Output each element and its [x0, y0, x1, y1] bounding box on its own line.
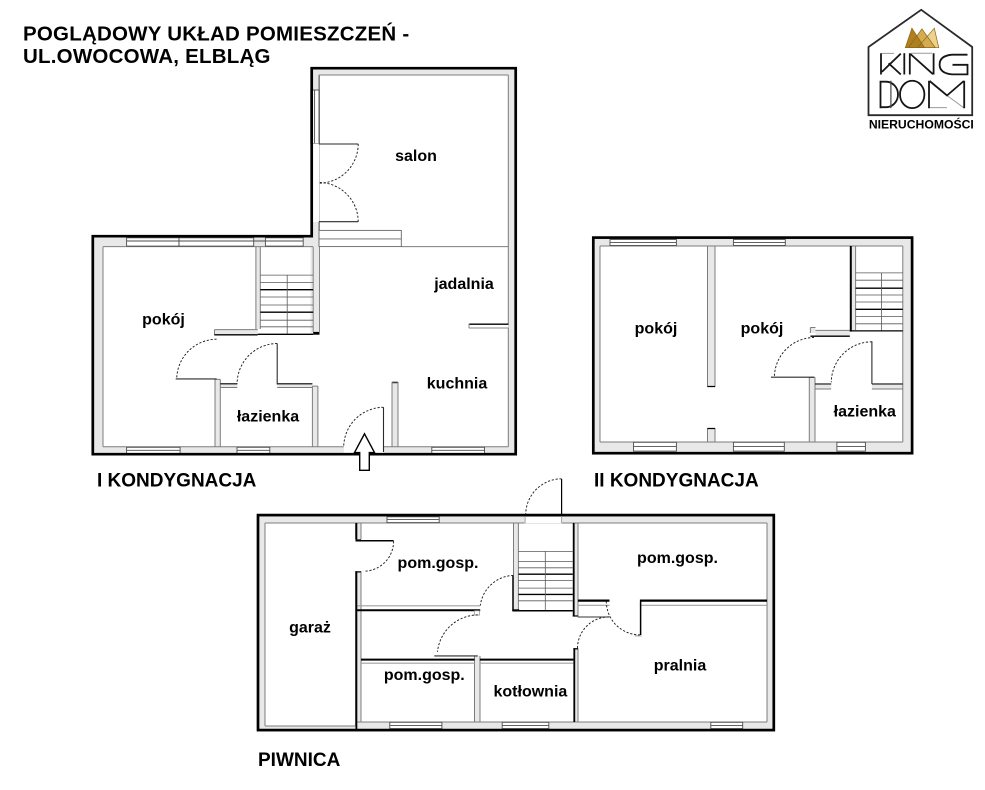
svg-text:pralnia: pralnia [654, 658, 707, 675]
svg-text:I KONDYGNACJA: I KONDYGNACJA [97, 471, 257, 492]
svg-text:pom.gosp.: pom.gosp. [384, 667, 465, 684]
svg-text:POGLĄDOWY UKŁAD POMIESZCZEŃ -: POGLĄDOWY UKŁAD POMIESZCZEŃ - [23, 22, 409, 45]
svg-text:pom.gosp.: pom.gosp. [398, 555, 479, 572]
svg-text:łazienka: łazienka [237, 409, 299, 426]
svg-text:łazienka: łazienka [834, 404, 896, 421]
svg-text:jadalnia: jadalnia [433, 276, 494, 293]
svg-text:pokój: pokój [142, 312, 185, 329]
svg-text:II KONDYGNACJA: II KONDYGNACJA [594, 471, 759, 492]
svg-text:NIERUCHOMOŚCI: NIERUCHOMOŚCI [869, 117, 974, 132]
svg-text:PIWNICA: PIWNICA [258, 750, 341, 771]
svg-text:salon: salon [395, 148, 437, 165]
svg-text:kuchnia: kuchnia [427, 376, 488, 393]
svg-text:kotłownia: kotłownia [494, 684, 568, 701]
svg-text:UL.OWOCOWA, ELBLĄG: UL.OWOCOWA, ELBLĄG [23, 45, 271, 68]
svg-text:garaż: garaż [289, 620, 331, 637]
svg-text:pokój: pokój [741, 321, 784, 338]
svg-text:pom.gosp.: pom.gosp. [637, 550, 718, 567]
svg-text:pokój: pokój [635, 321, 678, 338]
